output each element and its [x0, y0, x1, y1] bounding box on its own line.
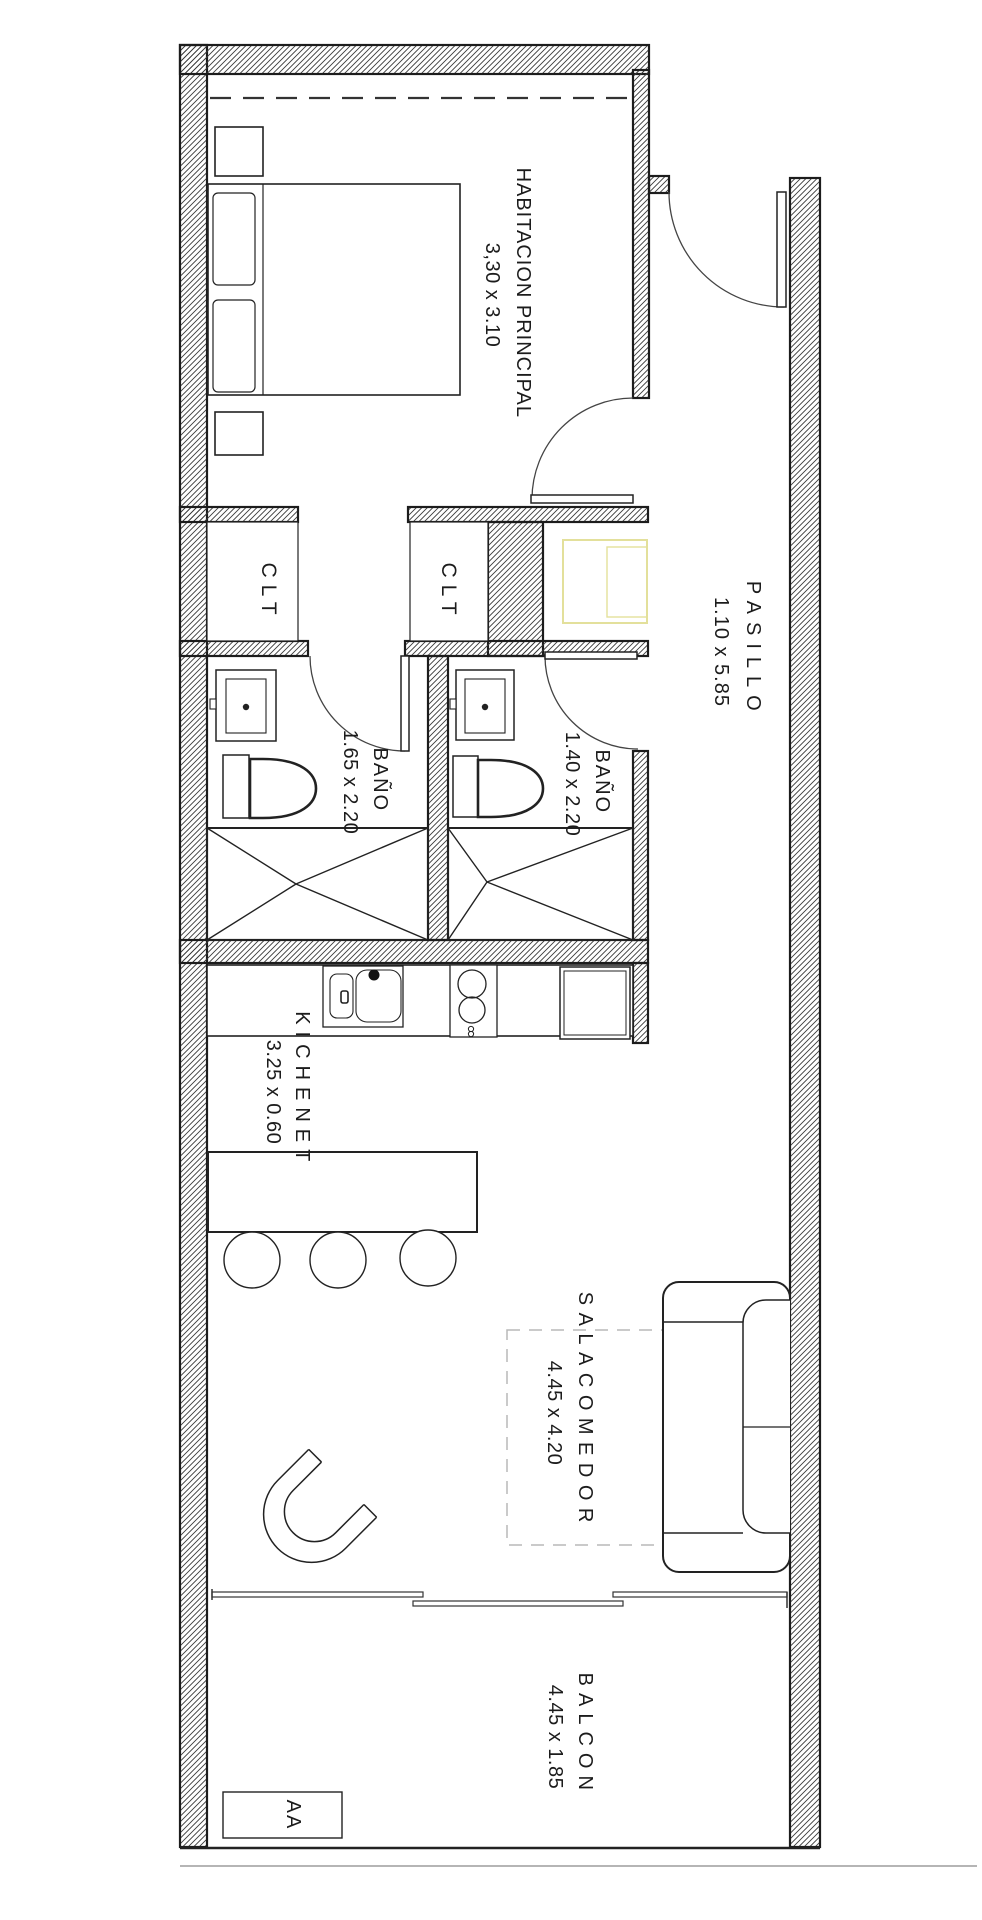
- floor-plan: HABITACION PRINCIPAL 3,30 x 3.10 PASILLO…: [0, 0, 982, 1920]
- floor-plan-drawing: HABITACION PRINCIPAL 3,30 x 3.10 PASILLO…: [0, 0, 982, 1920]
- sink2-side-tick: [450, 699, 456, 709]
- bathroom1-door-leaf: [401, 656, 409, 751]
- label-closet1: CLT: [257, 562, 280, 621]
- label-hallway: PASILLO 1.10 x 5.85: [710, 581, 764, 723]
- wall-bath-top-left: [180, 641, 308, 656]
- armchair: [244, 1449, 377, 1582]
- fridge-inner: [564, 971, 626, 1035]
- bathroom2-door-leaf: [545, 652, 637, 659]
- toilet2-bowl: [478, 760, 543, 817]
- wall-top-exterior: [180, 45, 649, 74]
- bar-stool-1: [224, 1232, 280, 1288]
- sink1-side-tick: [210, 699, 216, 709]
- wall-corridor-right: [790, 178, 820, 1847]
- label-ac-unit: AA: [282, 1800, 304, 1831]
- sliding-door-panel-3: [613, 1592, 787, 1597]
- label-balcony: BALCON 4.45 x 1.85: [544, 1673, 596, 1802]
- wall-bedroom-south-left: [180, 507, 298, 522]
- bedroom-furniture: [208, 98, 633, 455]
- sofa-back-cushion: [743, 1300, 790, 1533]
- toilet1-bowl: [250, 759, 316, 818]
- bathroom2-door-arc: [545, 656, 638, 749]
- shower1-tray: [207, 828, 428, 940]
- wall-bath2-right: [633, 751, 648, 940]
- sofa: [663, 1282, 790, 1572]
- toilet1-tank: [223, 755, 249, 818]
- entry-door-arc: [669, 192, 784, 307]
- wall-bath-divider: [428, 656, 448, 940]
- wall-bedroom-south-right: [408, 507, 648, 522]
- kitchen-sink-drain: [341, 991, 348, 1003]
- nightstand-bottom: [215, 412, 263, 455]
- wall-entry-jamb: [649, 176, 669, 193]
- toilet2-tank: [453, 756, 478, 817]
- bar-stool-3: [400, 1230, 456, 1286]
- water-heater-inner: [607, 547, 647, 617]
- sliding-door-panel-1: [212, 1592, 423, 1597]
- shower1-fold-lines: [207, 828, 428, 940]
- shower2-fold-lines: [448, 828, 633, 940]
- bedroom-door-arc: [532, 398, 633, 499]
- living-furniture: [244, 1282, 790, 1582]
- wall-closet2-side-block: [488, 522, 543, 656]
- stove: [450, 965, 497, 1037]
- sink1-drain: [243, 704, 249, 710]
- kitchen-island: [208, 1152, 477, 1232]
- niche-appliance: [563, 540, 647, 623]
- wall-bedroom-right: [633, 70, 649, 398]
- wall-bath-bottom: [180, 940, 648, 963]
- label-bathroom2: BAÑO 1.40 x 2.20: [561, 732, 615, 836]
- sink2-drain: [482, 704, 488, 710]
- wall-kitchen-stub: [633, 963, 648, 1043]
- label-closet2: CLT: [437, 562, 460, 621]
- kitchen-faucet: [369, 970, 380, 981]
- closet1-box: [207, 522, 298, 641]
- sliding-door-panel-2: [413, 1601, 623, 1606]
- label-living-dining: SALACOMEDOR 4.45 x 4.20: [543, 1292, 596, 1535]
- pillow-2: [213, 300, 255, 392]
- entry-door-leaf: [777, 192, 786, 307]
- nightstand-top: [215, 127, 263, 176]
- bar-stool-2: [310, 1232, 366, 1288]
- label-bedroom: HABITACION PRINCIPAL 3,30 x 3.10: [481, 168, 534, 423]
- water-heater-outline: [563, 540, 647, 623]
- bedroom-door-leaf: [531, 495, 633, 503]
- pillow-1: [213, 193, 255, 285]
- shower2-tray: [448, 828, 633, 940]
- bathroom1-fixtures: [207, 670, 428, 940]
- label-bathroom1: BAÑO 1.65 x 2.20: [339, 730, 393, 834]
